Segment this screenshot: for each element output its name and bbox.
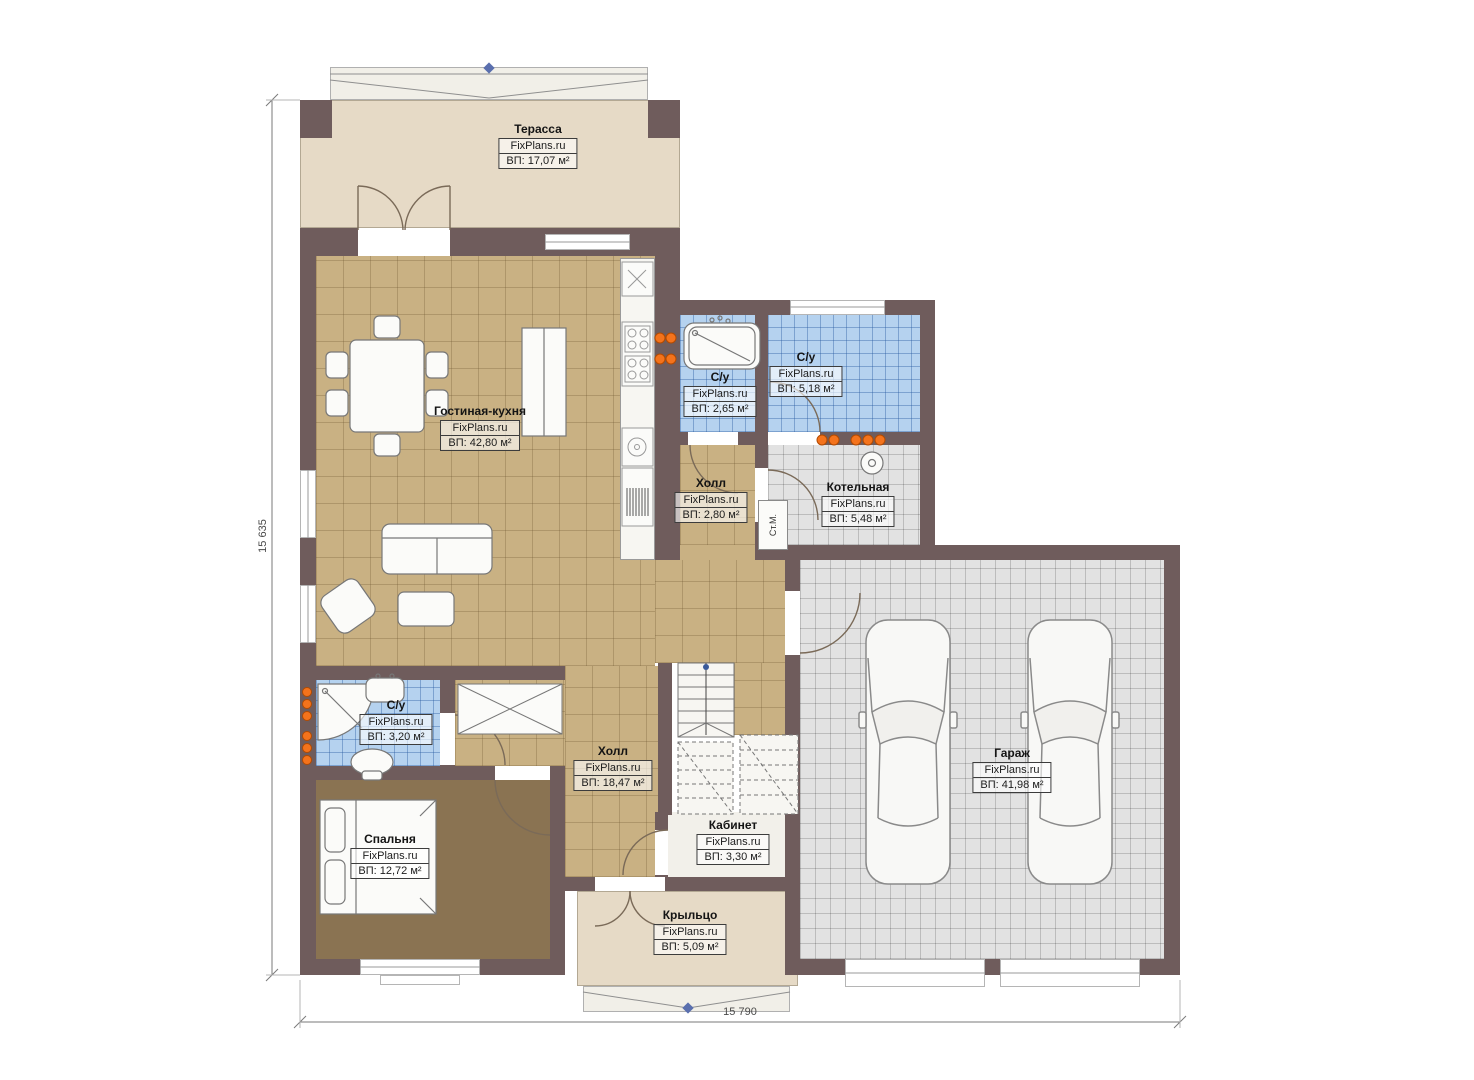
room-name: Котельная: [821, 480, 894, 494]
brand-watermark: FixPlans.ru: [822, 497, 893, 512]
room-name: Гостиная-кухня: [434, 404, 526, 418]
opening-wc-top-right-door: [768, 432, 820, 445]
room-label-living: Гостиная-кухня FixPlans.ru ВП: 42,80 м²: [434, 404, 526, 451]
room-info-box: FixPlans.ru ВП: 18,47 м²: [573, 760, 652, 791]
room-area: ВП: 5,48 м²: [822, 512, 893, 526]
room-area: ВП: 5,09 м²: [654, 940, 725, 954]
washing-machine: Ст.М.: [758, 500, 788, 550]
room-info-box: FixPlans.ru ВП: 12,72 м²: [350, 848, 429, 879]
room-area: ВП: 12,72 м²: [351, 864, 428, 878]
opening-front-door: [595, 877, 665, 891]
brand-watermark: FixPlans.ru: [675, 493, 746, 508]
wall-wc-closet-top: [300, 666, 565, 680]
room-area: ВП: 17,07 м²: [499, 154, 576, 168]
room-area: ВП: 5,18 м²: [770, 382, 841, 396]
wall-terrace-corner-right: [648, 100, 680, 138]
garage-door-right: [1000, 959, 1140, 987]
garage-door-left: [845, 959, 985, 987]
room-info-box: FixPlans.ru ВП: 2,65 м²: [683, 386, 756, 417]
window-bedroom: [360, 959, 480, 975]
brand-watermark: FixPlans.ru: [684, 387, 755, 402]
floor-plan-canvas: Ст.М.: [0, 0, 1474, 1080]
wall-terrace-corner-left: [300, 100, 332, 138]
brand-watermark: FixPlans.ru: [770, 367, 841, 382]
terrace-floor: [300, 100, 680, 228]
room-name: Холл: [674, 476, 747, 490]
room-label-garage: Гараж FixPlans.ru ВП: 41,98 м²: [972, 746, 1051, 793]
opening-bedroom-door: [495, 766, 550, 780]
wall-bath-divider: [755, 315, 768, 432]
wall-bedroom-right: [550, 780, 565, 960]
window-kitchen: [545, 234, 630, 250]
room-info-box: FixPlans.ru ВП: 41,98 м²: [972, 762, 1051, 793]
room-label-terrace: Терасса FixPlans.ru ВП: 17,07 м²: [498, 122, 577, 169]
living-kitchen-floor: [316, 256, 655, 666]
opening-hall-passage: [680, 545, 755, 560]
room-info-box: FixPlans.ru ВП: 5,48 м²: [821, 496, 894, 527]
brand-watermark: FixPlans.ru: [973, 763, 1050, 778]
passage-floor: [655, 560, 785, 663]
wall-garage-top: [935, 545, 1180, 560]
room-info-box: FixPlans.ru ВП: 2,80 м²: [674, 492, 747, 523]
terrace-steps: [330, 67, 648, 100]
room-name: С/у: [359, 698, 432, 712]
room-info-box: FixPlans.ru ВП: 5,18 м²: [769, 366, 842, 397]
room-info-box: FixPlans.ru ВП: 42,80 м²: [440, 420, 519, 451]
room-label-wc-top-right: С/у FixPlans.ru ВП: 5,18 м²: [769, 350, 842, 397]
dimension-left: 15 635: [257, 519, 269, 553]
opening-cabinet-door: [655, 830, 668, 875]
brand-watermark: FixPlans.ru: [499, 139, 576, 154]
opening-garage-door: [785, 591, 800, 655]
window-annex-top: [790, 300, 885, 315]
room-area: ВП: 3,30 м²: [697, 850, 768, 864]
room-name: С/у: [769, 350, 842, 364]
room-area: ВП: 2,80 м²: [675, 508, 746, 522]
kitchen-counter: [620, 258, 655, 560]
brand-watermark: FixPlans.ru: [697, 835, 768, 850]
window-living-left-2: [300, 585, 316, 643]
wall-annex-right: [920, 300, 935, 560]
passage-floor-patch: [734, 663, 785, 735]
brand-watermark: FixPlans.ru: [360, 715, 431, 730]
room-label-porch: Крыльцо FixPlans.ru ВП: 5,09 м²: [653, 908, 726, 955]
opening-wc-top-left-door: [688, 432, 738, 445]
room-info-box: FixPlans.ru ВП: 5,09 м²: [653, 924, 726, 955]
room-name: Холл: [573, 744, 652, 758]
room-name: Терасса: [498, 122, 577, 136]
room-name: Кабинет: [696, 818, 769, 832]
room-area: ВП: 42,80 м²: [441, 436, 518, 450]
room-label-hall-main: Холл FixPlans.ru ВП: 18,47 м²: [573, 744, 652, 791]
room-area: ВП: 41,98 м²: [973, 778, 1050, 792]
wall-garage-right: [1164, 545, 1180, 975]
room-info-box: FixPlans.ru ВП: 17,07 м²: [498, 138, 577, 169]
room-name: Спальня: [350, 832, 429, 846]
closet-area-floor: [455, 680, 565, 766]
room-label-wc-bottom: С/у FixPlans.ru ВП: 3,20 м²: [359, 698, 432, 745]
room-label-wc-top-left: С/у FixPlans.ru ВП: 2,65 м²: [683, 370, 756, 417]
room-area: ВП: 2,65 м²: [684, 402, 755, 416]
room-label-bedroom: Спальня FixPlans.ru ВП: 12,72 м²: [350, 832, 429, 879]
room-label-boiler: Котельная FixPlans.ru ВП: 5,48 м²: [821, 480, 894, 527]
opening-terrace-door: [358, 228, 450, 256]
brand-watermark: FixPlans.ru: [574, 761, 651, 776]
window-living-left-1: [300, 470, 316, 538]
room-info-box: FixPlans.ru ВП: 3,30 м²: [696, 834, 769, 865]
brand-watermark: FixPlans.ru: [654, 925, 725, 940]
room-area: ВП: 3,20 м²: [360, 730, 431, 744]
room-info-box: FixPlans.ru ВП: 3,20 м²: [359, 714, 432, 745]
brand-watermark: FixPlans.ru: [441, 421, 518, 436]
room-area: ВП: 18,47 м²: [574, 776, 651, 790]
room-name: С/у: [683, 370, 756, 384]
room-label-hall-upper: Холл FixPlans.ru ВП: 2,80 м²: [674, 476, 747, 523]
wall-stairs-left: [658, 663, 672, 815]
dimension-bottom: 15 790: [723, 1006, 757, 1018]
brand-watermark: FixPlans.ru: [351, 849, 428, 864]
room-name: Крыльцо: [653, 908, 726, 922]
room-label-cabinet: Кабинет FixPlans.ru ВП: 3,30 м²: [696, 818, 769, 865]
opening-wc-bottom-door: [440, 713, 455, 765]
porch-steps: [583, 986, 790, 1012]
window-bedroom-sill: [380, 975, 460, 985]
washing-machine-label: Ст.М.: [768, 514, 778, 536]
room-name: Гараж: [972, 746, 1051, 760]
